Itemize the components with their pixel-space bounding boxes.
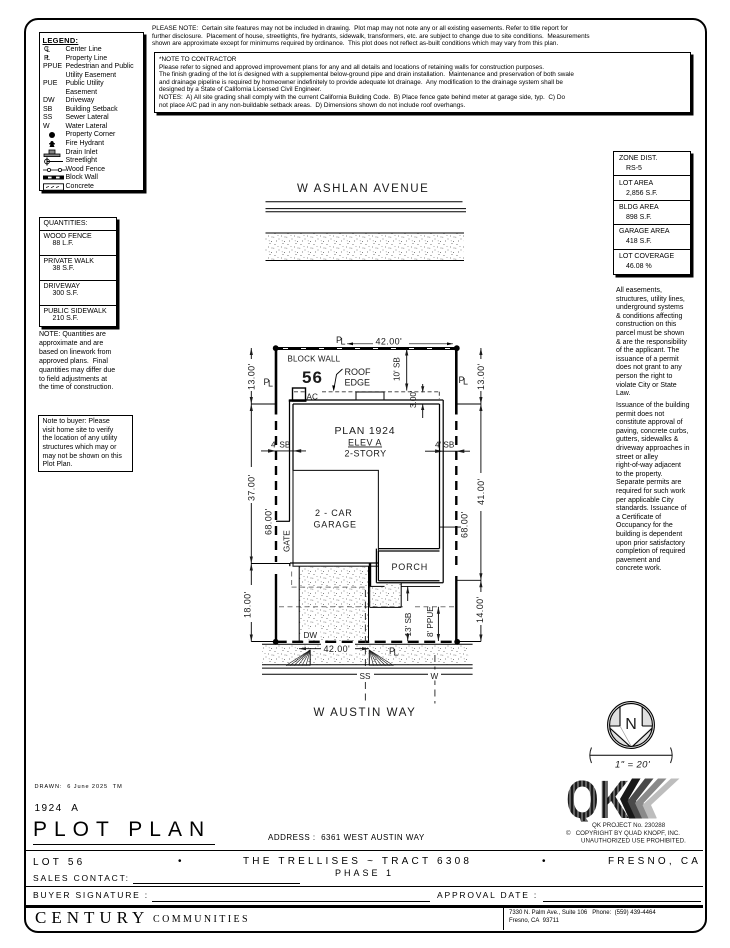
svg-text:© COPYRIGHT BY QUAD KNOPF, I: © COPYRIGHT BY QUAD KNOPF, INC. <box>566 830 680 837</box>
svg-text:13.00': 13.00' <box>476 363 486 390</box>
svg-text:37.00': 37.00' <box>247 474 257 501</box>
svg-text:PLAN 1924: PLAN 1924 <box>335 425 396 437</box>
svg-text:14.00': 14.00' <box>475 596 485 623</box>
svg-text:W ASHLAN AVENUE: W ASHLAN AVENUE <box>297 183 429 195</box>
svg-text:1" = 20': 1" = 20' <box>615 760 651 771</box>
svg-text:ROOF: ROOF <box>345 367 372 377</box>
svg-text:2-STORY: 2-STORY <box>345 449 387 459</box>
svg-text:10' SB: 10' SB <box>393 357 402 381</box>
svg-text:DW: DW <box>304 631 318 640</box>
svg-text:4' SB: 4' SB <box>435 441 455 450</box>
svg-text:3.00': 3.00' <box>409 390 418 408</box>
svg-text:N: N <box>625 716 637 733</box>
svg-text:18.00': 18.00' <box>243 591 253 618</box>
svg-text:68.00': 68.00' <box>264 508 274 535</box>
svg-text:L: L <box>463 377 468 387</box>
svg-text:42.00': 42.00' <box>376 337 403 347</box>
svg-text:GATE: GATE <box>283 530 292 552</box>
svg-text:L: L <box>341 337 346 347</box>
svg-text:42.00': 42.00' <box>324 644 351 654</box>
svg-text:W: W <box>431 672 439 681</box>
svg-text:W AUSTIN WAY: W AUSTIN WAY <box>314 707 417 719</box>
svg-text:2 - CAR: 2 - CAR <box>315 508 353 518</box>
svg-text:BLOCK WALL: BLOCK WALL <box>288 355 341 364</box>
svg-text:4' SB: 4' SB <box>271 441 291 450</box>
svg-text:13.00': 13.00' <box>247 363 257 390</box>
svg-text:41.00': 41.00' <box>476 478 486 505</box>
svg-text:68.00': 68.00' <box>460 511 470 538</box>
svg-text:13' SB: 13' SB <box>404 612 413 636</box>
svg-text:GARAGE: GARAGE <box>314 520 357 530</box>
svg-text:UNAUTHORIZED USE PROHIBITED.: UNAUTHORIZED USE PROHIBITED. <box>581 838 686 845</box>
svg-text:SS: SS <box>360 672 371 681</box>
svg-text:8' PPUE: 8' PPUE <box>426 606 435 637</box>
svg-text:56: 56 <box>302 368 323 387</box>
svg-text:EDGE: EDGE <box>345 378 371 388</box>
svg-text:QK PROJECT No. 230288: QK PROJECT No. 230288 <box>592 822 666 829</box>
svg-text:L: L <box>268 379 273 389</box>
svg-text:ELEV A: ELEV A <box>348 438 382 448</box>
svg-text:PORCH: PORCH <box>392 562 429 572</box>
